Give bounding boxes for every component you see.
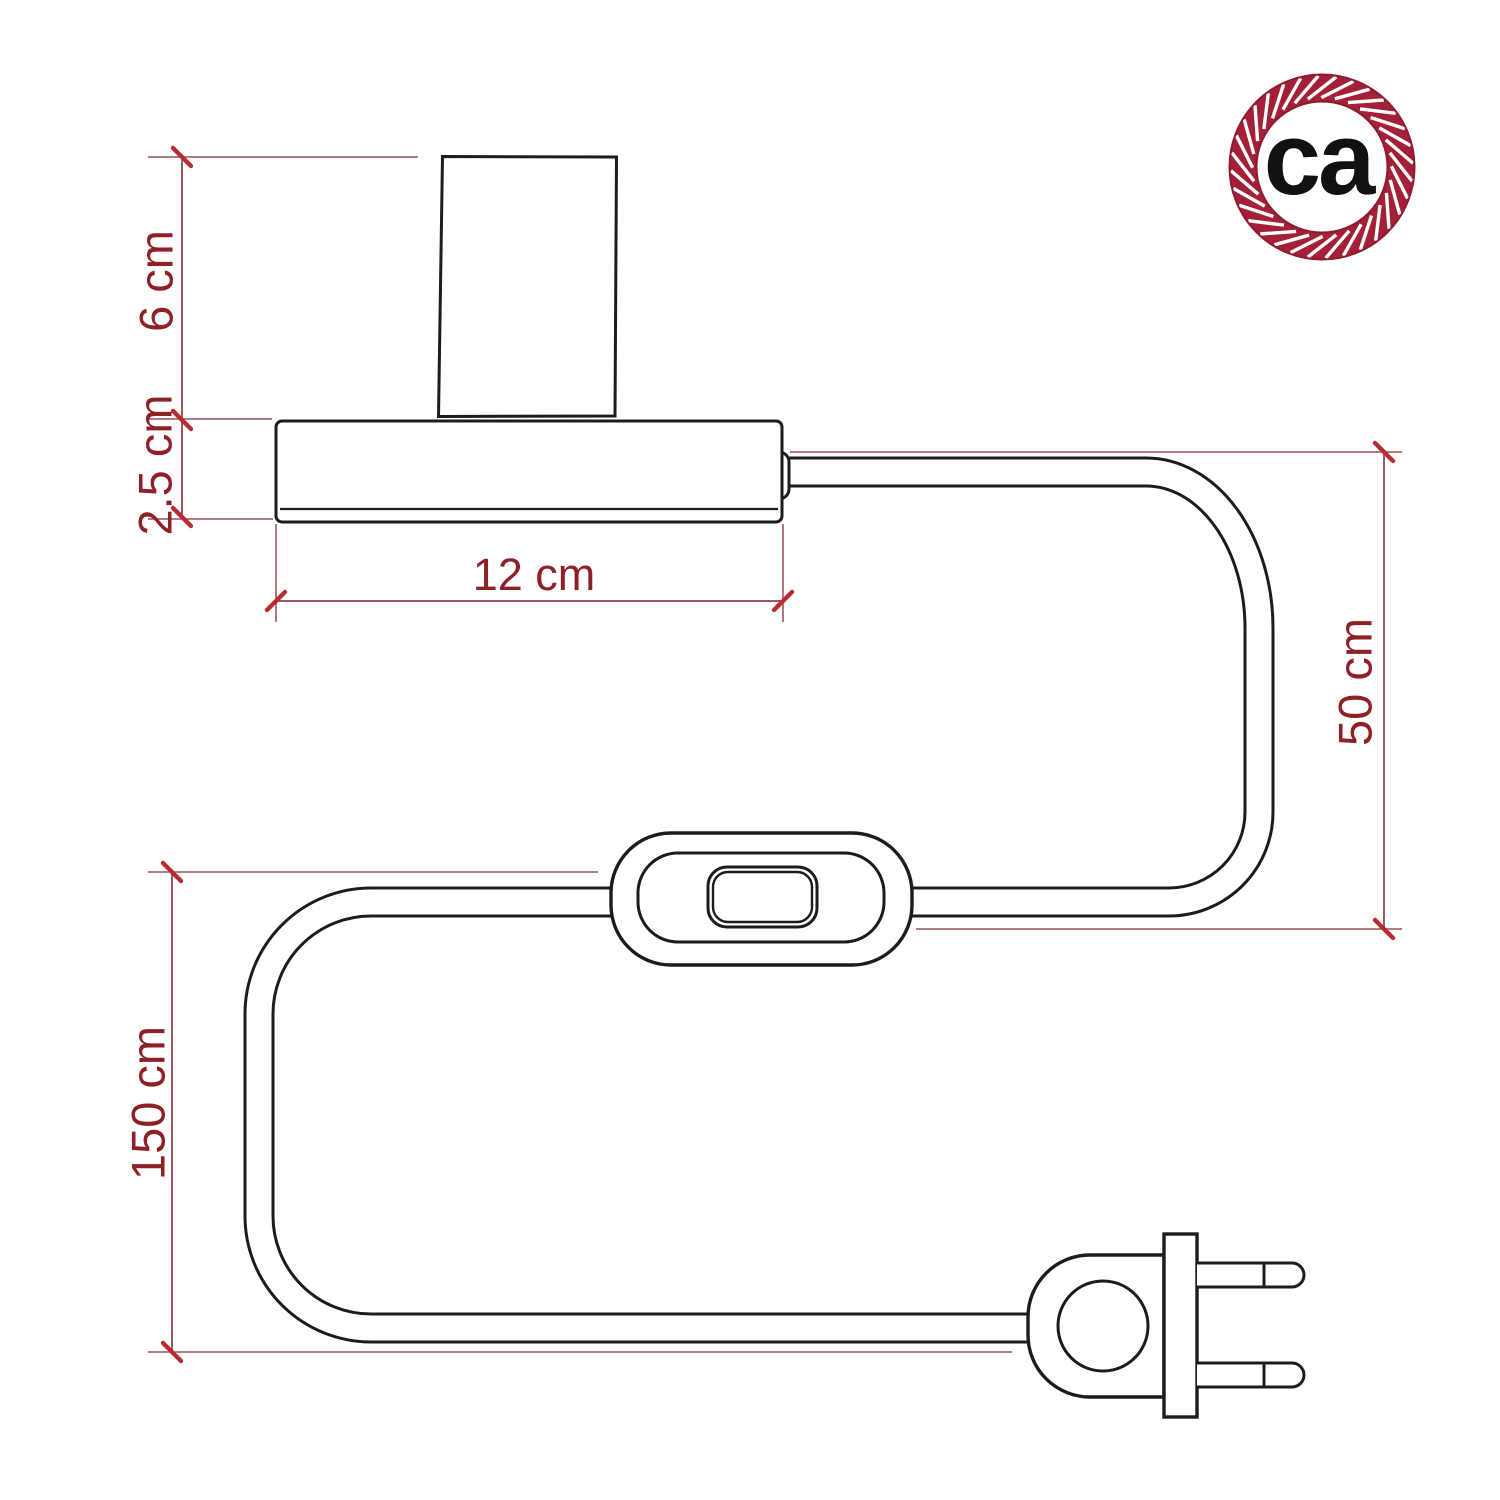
svg-text:2.5 cm: 2.5 cm [128, 394, 181, 535]
svg-text:150 cm: 150 cm [121, 1026, 174, 1180]
svg-text:ca: ca [1264, 101, 1376, 216]
svg-text:12 cm: 12 cm [473, 549, 596, 600]
svg-text:50 cm: 50 cm [1328, 618, 1381, 746]
svg-text:6 cm: 6 cm [129, 230, 182, 332]
